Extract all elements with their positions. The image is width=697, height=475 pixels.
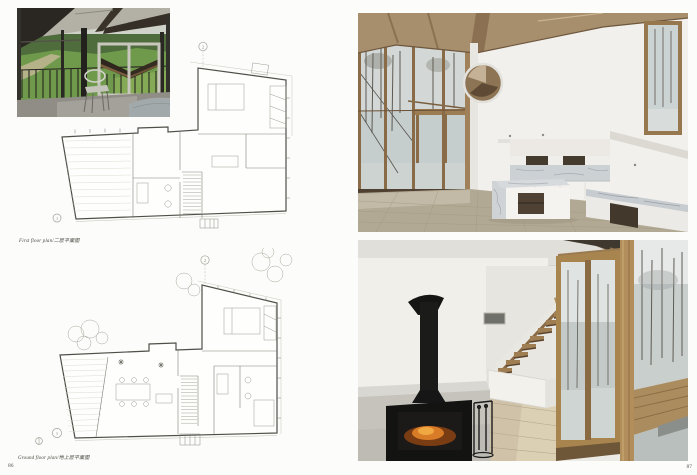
caption-first-floor-plan: First floor plan/二层平面图 — [19, 237, 80, 244]
datum-label: 1 — [56, 216, 58, 221]
marble-backsplash — [510, 165, 610, 181]
photo-stove-interior — [358, 240, 688, 461]
small-window — [484, 313, 505, 324]
book-spread: 2 — [0, 0, 697, 475]
entry-steps — [200, 219, 218, 228]
caption-ground-floor-plan: Ground floor plan/地上层平面图 — [18, 454, 89, 461]
kitchen-photo-graphic — [358, 13, 688, 232]
datum-marker-bottom: 1 — [36, 428, 62, 444]
floor-plan-first: 2 — [30, 38, 312, 234]
glazed-doors — [556, 240, 688, 461]
datum-label: 2 — [202, 44, 204, 49]
stove-photo-graphic — [358, 240, 688, 461]
round-mirror — [464, 64, 502, 102]
page-number-left: 86 — [8, 463, 14, 469]
plan-outline — [62, 68, 286, 219]
outside-view — [634, 240, 688, 461]
ground-floor-plan-drawing: 2 — [18, 248, 318, 448]
first-floor-plan-drawing: 2 — [30, 38, 312, 234]
datum-marker-bottom: 1 — [53, 214, 61, 222]
datum-label: 2 — [204, 258, 206, 263]
photo-kitchen-interior — [358, 13, 688, 232]
window-wall — [358, 40, 471, 194]
datum-marker-top: 2 — [201, 256, 209, 284]
datum-label: 1 — [56, 431, 58, 436]
timber-post — [620, 240, 634, 461]
page-number-right: 87 — [678, 464, 692, 470]
kitchen-island — [492, 179, 570, 219]
floor-plan-ground: 2 — [18, 248, 318, 448]
